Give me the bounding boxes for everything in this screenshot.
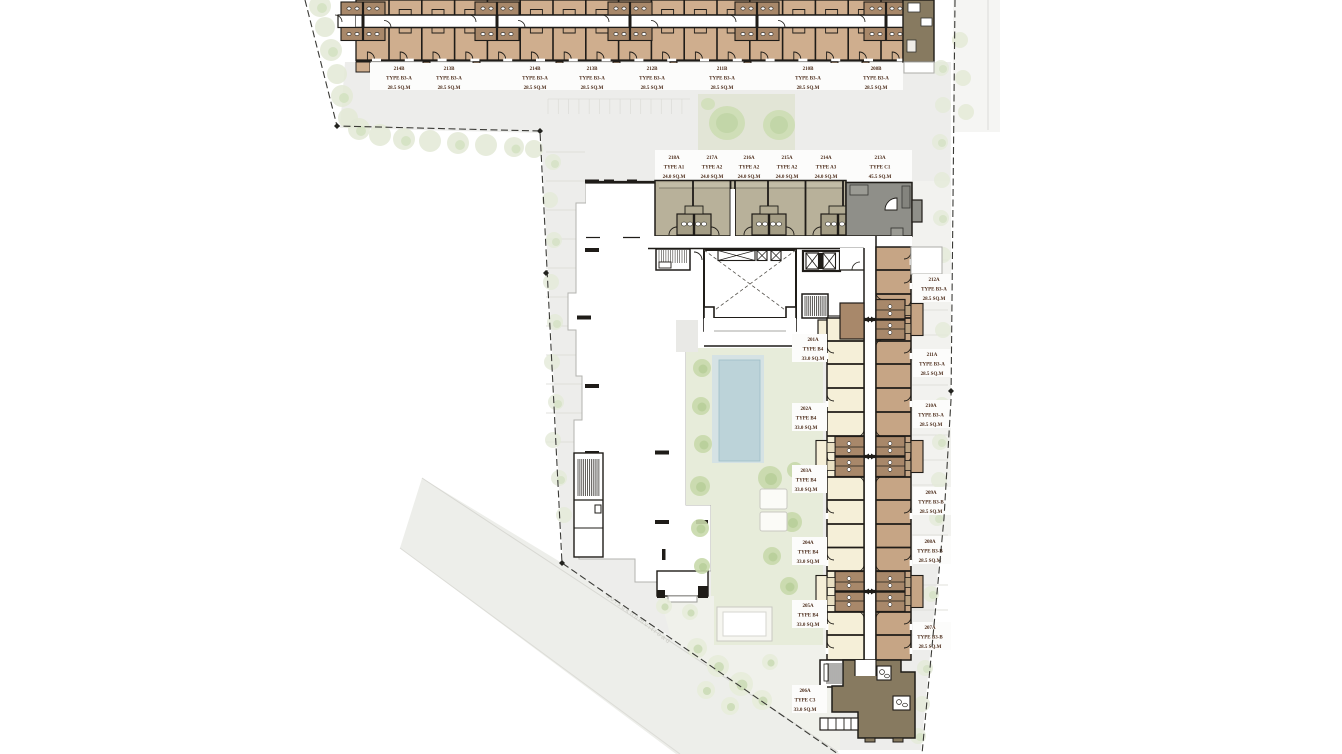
- svg-text:TYPE B3-A: TYPE B3-A: [795, 77, 821, 82]
- svg-text:218A: 218A: [668, 156, 680, 161]
- svg-text:210A: 210A: [925, 404, 937, 409]
- svg-text:TYPE B3-A: TYPE B3-A: [863, 77, 889, 82]
- svg-text:209A: 209A: [925, 491, 937, 496]
- svg-text:TYPE B4: TYPE B4: [796, 417, 817, 422]
- svg-text:TYPE A2: TYPE A2: [777, 166, 798, 171]
- svg-text:TYPE A2: TYPE A2: [739, 166, 760, 171]
- svg-text:TYPE B3-A: TYPE B3-A: [386, 77, 412, 82]
- svg-text:TYPE B4: TYPE B4: [798, 551, 819, 556]
- svg-text:217A: 217A: [706, 156, 718, 161]
- svg-text:28.5 SQ.M: 28.5 SQ.M: [797, 86, 820, 91]
- svg-text:33.0 SQ.M: 33.0 SQ.M: [794, 708, 817, 713]
- svg-text:28.5 SQ.M: 28.5 SQ.M: [388, 86, 411, 91]
- svg-text:24.0 SQ.M: 24.0 SQ.M: [738, 175, 761, 180]
- svg-text:212A: 212A: [928, 278, 940, 283]
- svg-text:203A: 203A: [800, 469, 812, 474]
- svg-text:202A: 202A: [800, 407, 812, 412]
- svg-text:28.5 SQ.M: 28.5 SQ.M: [865, 86, 888, 91]
- svg-text:TYPE B3-B: TYPE B3-B: [918, 501, 944, 506]
- svg-text:213A: 213A: [874, 156, 886, 161]
- svg-text:TYPE A1: TYPE A1: [664, 166, 685, 171]
- svg-text:28.5 SQ.M: 28.5 SQ.M: [919, 645, 942, 650]
- svg-text:213B: 213B: [587, 67, 599, 72]
- svg-text:TYPE B3-A: TYPE B3-A: [436, 77, 462, 82]
- svg-text:TYPE B3-A: TYPE B3-A: [919, 363, 945, 368]
- svg-text:24.0 SQ.M: 24.0 SQ.M: [701, 175, 724, 180]
- svg-text:28.5 SQ.M: 28.5 SQ.M: [923, 297, 946, 302]
- svg-text:TYPE B3-A: TYPE B3-A: [639, 77, 665, 82]
- svg-text:45.5 SQ.M: 45.5 SQ.M: [869, 175, 892, 180]
- svg-text:TYPE B3-A: TYPE B3-A: [709, 77, 735, 82]
- svg-text:216A: 216A: [743, 156, 755, 161]
- svg-text:210B: 210B: [803, 67, 815, 72]
- svg-text:33.0 SQ.M: 33.0 SQ.M: [797, 623, 820, 628]
- svg-text:204A: 204A: [802, 541, 814, 546]
- svg-text:TYPE A3: TYPE A3: [816, 166, 837, 171]
- svg-text:212B: 212B: [647, 67, 659, 72]
- svg-text:TYPE C3: TYPE C3: [795, 699, 816, 704]
- svg-text:TYPE B3-A: TYPE B3-A: [921, 288, 947, 293]
- svg-text:213B: 213B: [444, 67, 456, 72]
- svg-text:201A: 201A: [807, 338, 819, 343]
- svg-text:TYPE B4: TYPE B4: [803, 348, 824, 353]
- svg-text:211B: 211B: [717, 67, 728, 72]
- svg-text:28.5 SQ.M: 28.5 SQ.M: [920, 423, 943, 428]
- svg-text:24.0 SQ.M: 24.0 SQ.M: [776, 175, 799, 180]
- svg-text:215A: 215A: [781, 156, 793, 161]
- svg-text:33.0 SQ.M: 33.0 SQ.M: [797, 560, 820, 565]
- svg-text:28.5 SQ.M: 28.5 SQ.M: [438, 86, 461, 91]
- svg-text:TYPE B3-A: TYPE B3-A: [522, 77, 548, 82]
- svg-text:TYPE B4: TYPE B4: [796, 479, 817, 484]
- svg-text:206A: 206A: [799, 689, 811, 694]
- svg-text:28.5 SQ.M: 28.5 SQ.M: [919, 559, 942, 564]
- svg-text:214A: 214A: [820, 156, 832, 161]
- svg-text:TYPE B4: TYPE B4: [798, 614, 819, 619]
- svg-text:28.5 SQ.M: 28.5 SQ.M: [711, 86, 734, 91]
- svg-text:24.0 SQ.M: 24.0 SQ.M: [663, 175, 686, 180]
- svg-text:208B: 208B: [871, 67, 883, 72]
- svg-text:28.5 SQ.M: 28.5 SQ.M: [524, 86, 547, 91]
- svg-text:24.0 SQ.M: 24.0 SQ.M: [815, 175, 838, 180]
- svg-text:TYPE B3-B: TYPE B3-B: [917, 550, 943, 555]
- svg-text:33.0 SQ.M: 33.0 SQ.M: [795, 488, 818, 493]
- svg-text:TYPE B3-B: TYPE B3-B: [917, 636, 943, 641]
- svg-text:207A: 207A: [924, 626, 936, 631]
- svg-text:28.5 SQ.M: 28.5 SQ.M: [920, 510, 943, 515]
- svg-text:33.0 SQ.M: 33.0 SQ.M: [802, 357, 825, 362]
- svg-text:TYPE A2: TYPE A2: [702, 166, 723, 171]
- svg-text:TYPE B3-A: TYPE B3-A: [579, 77, 605, 82]
- svg-text:214B: 214B: [530, 67, 542, 72]
- svg-text:TYPE B3-A: TYPE B3-A: [918, 414, 944, 419]
- svg-text:28.5 SQ.M: 28.5 SQ.M: [921, 372, 944, 377]
- svg-text:28.5 SQ.M: 28.5 SQ.M: [581, 86, 604, 91]
- svg-text:33.0 SQ.M: 33.0 SQ.M: [795, 426, 818, 431]
- svg-text:208A: 208A: [924, 540, 936, 545]
- svg-text:205A: 205A: [802, 604, 814, 609]
- svg-text:211A: 211A: [927, 353, 938, 358]
- svg-text:TYPE C1: TYPE C1: [870, 166, 891, 171]
- svg-text:214B: 214B: [394, 67, 406, 72]
- svg-text:28.5 SQ.M: 28.5 SQ.M: [641, 86, 664, 91]
